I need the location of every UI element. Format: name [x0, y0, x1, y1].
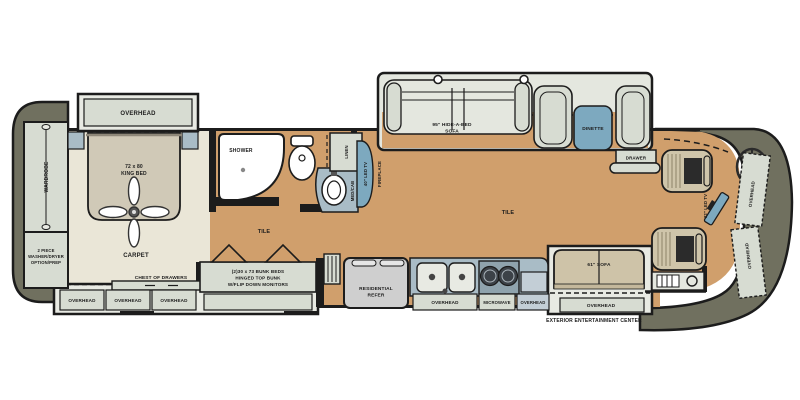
carpet-label: CARPET [123, 253, 149, 259]
washer-label-1: 2 PIECE [37, 248, 54, 253]
refer-label-2: REFER [367, 293, 384, 299]
nightstand-left [68, 132, 84, 149]
dinette-bench-left [534, 86, 572, 148]
kitchen-overhead2-label: OVERHEAD [521, 300, 546, 305]
kitchen-sink-icon [417, 263, 475, 294]
entry-steps [652, 272, 704, 290]
washer-label-3: OPTION/PREP [31, 260, 61, 265]
microwave-label: MICROWAVE [483, 300, 510, 305]
pantry-cabinet [324, 254, 340, 284]
passenger-seat [652, 228, 706, 270]
king-bed-label-2: KING BED [121, 171, 147, 177]
washer-label-2: WASHER/DRYER [28, 254, 64, 259]
tile-label-living: TILE [502, 210, 515, 216]
drawer-label: DRAWER [626, 156, 647, 161]
shower-label: SHOWER [229, 148, 253, 154]
cooktop-burners-icon [479, 261, 519, 294]
driver-seat [662, 150, 712, 192]
sofa61-overhead-label: OVERHEAD [587, 303, 616, 309]
bunk-label-2: HINGED TOP BUNK [235, 276, 281, 281]
bath-sink-icon [322, 175, 346, 205]
hide-a-bed-label-1: 95" HIDE-A-BED [432, 122, 472, 128]
refrigerator [344, 258, 408, 308]
nightstand-right [182, 132, 198, 149]
dinette-bench-right [616, 86, 650, 148]
sofa-61 [554, 250, 644, 289]
med-cab-label: MED/CAB [350, 181, 355, 202]
tile-label-bath: TILE [258, 229, 271, 235]
tv32-label: 32" LED TV [703, 194, 708, 218]
bunk-beds-lower [204, 294, 312, 310]
floorplan-drawing: OVERHEAD WARDROBE 2 PIECE WASHER/DRYER O… [0, 0, 800, 400]
hide-a-bed-label-2: SOFA [445, 129, 459, 135]
sofa61-label: 61" SOFA [587, 262, 611, 268]
chest-of-drawers-label: CHEST OF DRAWERS [135, 275, 188, 281]
bottom-overhead-label-3: OVERHEAD [160, 298, 188, 303]
wardrobe-label: WARDROBE [44, 161, 50, 192]
toilet-icon [289, 136, 315, 180]
bottom-overhead-label-2: OVERHEAD [114, 298, 142, 303]
kitchen-overhead2-upper [521, 272, 547, 292]
chest-of-drawers [112, 281, 210, 290]
shower-drain-icon [241, 168, 245, 172]
refer-label-1: RESIDENTIAL [359, 286, 393, 292]
fireplace-label: FIREPLACE [377, 161, 382, 187]
exterior-entertainment-label: EXTERIOR ENTERTAINMENT CENTER [546, 318, 642, 324]
bunk-label-3: W/FLIP DOWN MONITORS [228, 282, 288, 287]
tv40-label: 40" LED TV [363, 162, 368, 186]
dinette-drawer [610, 150, 660, 173]
rv-floorplan-canvas: OVERHEAD WARDROBE 2 PIECE WASHER/DRYER O… [0, 0, 800, 400]
kitchen-overhead-label: OVERHEAD [431, 300, 459, 305]
bunk-label-1: (2)30 x 73 BUNK BEDS [232, 269, 285, 274]
king-bed-label-1: 72 x 80 [125, 164, 143, 170]
dinette-label: DINETTE [582, 126, 604, 132]
bottom-overhead-label-1: OVERHEAD [68, 298, 96, 303]
linen-label: LINEN [344, 145, 349, 158]
bedroom-slide-overhead-label: OVERHEAD [120, 111, 156, 117]
